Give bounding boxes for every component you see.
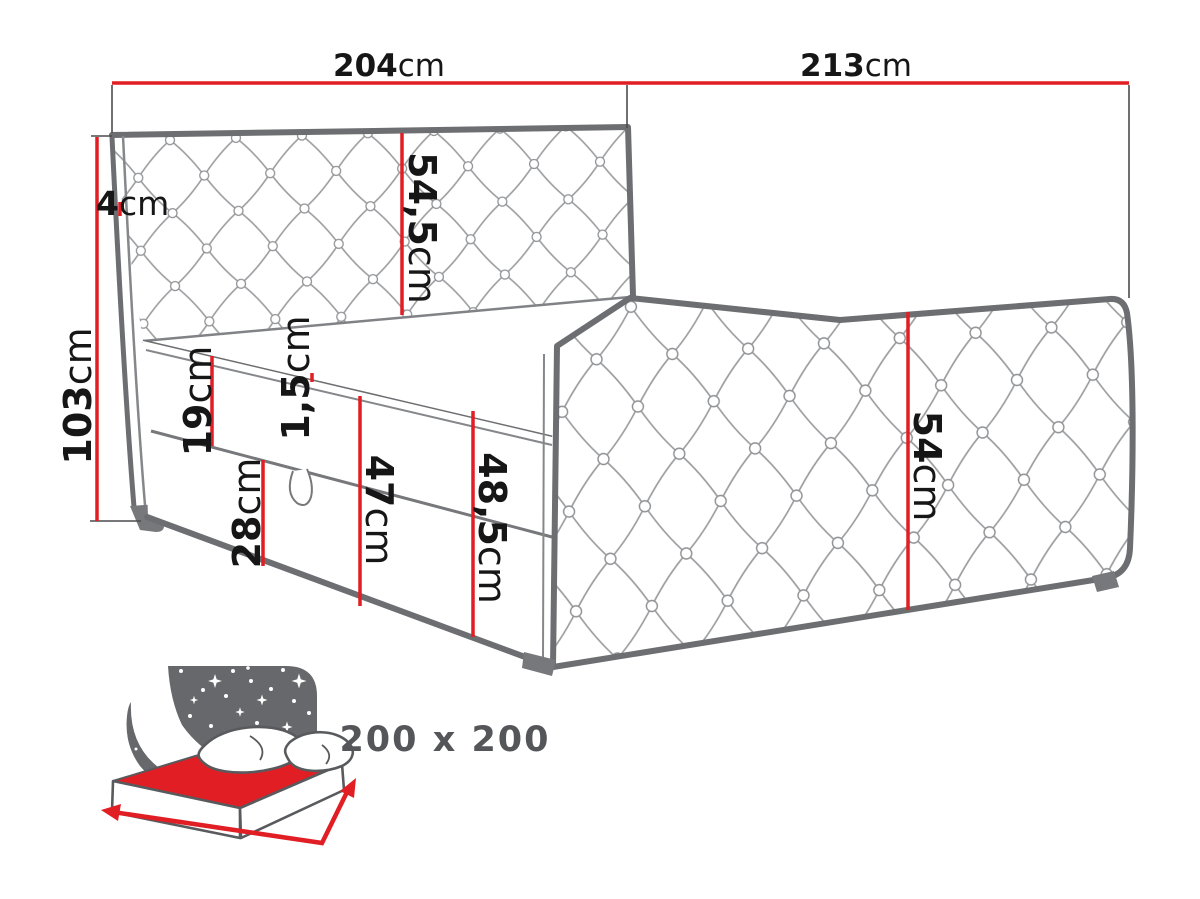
size-badge-label: 200 x 200 [339, 720, 550, 760]
bed-drawing [112, 127, 1133, 676]
dim-label-19cm: 19cm [176, 346, 220, 457]
bed-size-icon [101, 666, 356, 843]
dim-label-54-5cm: 54,5cm [400, 152, 444, 304]
dim-label-204cm: 204cm [333, 48, 445, 84]
storage-handle [290, 469, 312, 505]
dim-label-1-5cm: 1,5cm [274, 315, 318, 440]
bed-dimension-diagram: 204cm 213cm 4cm 103cm 19cm 1,5cm 28cm 54… [0, 0, 1200, 899]
dim-label-47cm: 47cm [357, 455, 401, 566]
dim-label-4cm: 4cm [96, 184, 169, 223]
dim-label-213cm: 213cm [800, 48, 912, 84]
dim-label-48-5cm: 48,5cm [470, 452, 514, 604]
dim-label-103cm: 103cm [56, 327, 100, 464]
dim-label-28cm: 28cm [225, 458, 269, 569]
icon-pillows [199, 727, 353, 773]
side-rail-panel [522, 298, 1133, 676]
dim-label-54cm: 54cm [905, 411, 949, 522]
diagram-canvas: 204cm 213cm 4cm 103cm 19cm 1,5cm 28cm 54… [0, 0, 1200, 899]
